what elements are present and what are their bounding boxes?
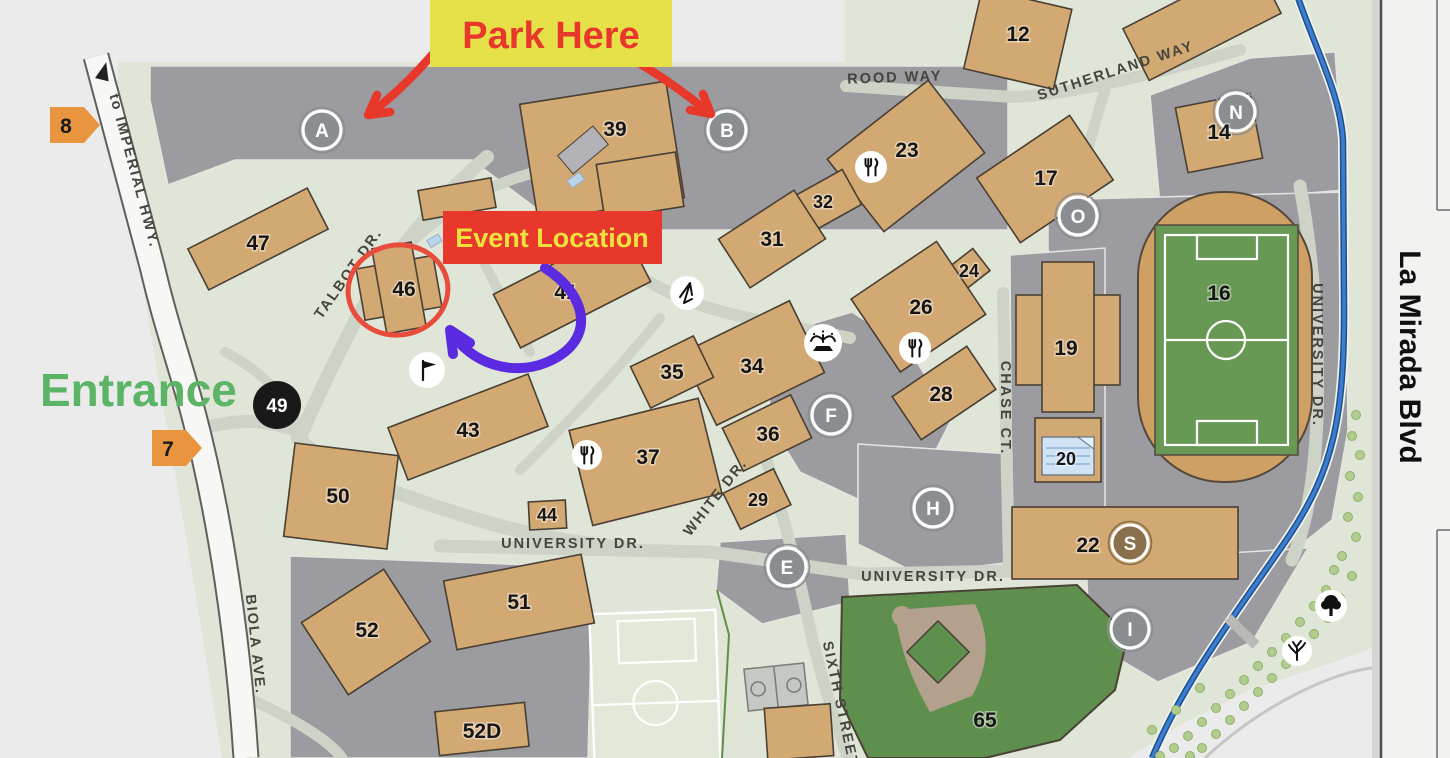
svg-text:O: O — [1071, 207, 1086, 228]
dining-icon — [572, 440, 602, 470]
building-label-52d: 52D — [463, 720, 502, 743]
dining-icon — [899, 332, 931, 364]
spot-marker-49: 49 — [253, 381, 301, 429]
lot-marker-h: H — [911, 486, 956, 531]
building-label-16: 16 — [1207, 282, 1230, 305]
entrance-label: Entrance — [40, 364, 237, 416]
fountain-icon — [804, 324, 842, 362]
svg-text:E: E — [781, 558, 794, 579]
lot-marker-f: F — [809, 393, 854, 438]
svg-text:S: S — [1124, 534, 1137, 555]
building-label-35: 35 — [660, 361, 684, 384]
building-label-50: 50 — [326, 485, 349, 508]
road-label-university-vertical: UNIVERSITY DR. — [1309, 283, 1325, 427]
road-label-la-mirada: La Mirada Blvd — [1393, 250, 1426, 463]
building-label-52: 52 — [355, 619, 378, 642]
building-label-32: 32 — [813, 192, 833, 212]
svg-text:H: H — [926, 499, 940, 520]
building-label-37: 37 — [636, 446, 659, 469]
road-label-chase: CHASE CT. — [997, 361, 1013, 456]
svg-text:7: 7 — [162, 438, 174, 461]
building-label-22: 22 — [1076, 534, 1099, 557]
lot-marker-a: A — [300, 108, 345, 153]
svg-text:8: 8 — [60, 115, 72, 138]
lot-marker-e: E — [765, 545, 810, 590]
building-label-20: 20 — [1056, 449, 1076, 469]
building-label-19: 19 — [1054, 337, 1077, 360]
building-unlabeled-bottom — [764, 704, 833, 758]
road-label-university-west: UNIVERSITY DR. — [501, 536, 645, 552]
building-label-39: 39 — [603, 118, 626, 141]
event-location-banner: Event Location — [443, 211, 662, 264]
building-label-23: 23 — [895, 139, 918, 162]
event-location-label: Event Location — [455, 223, 649, 253]
building-39-wing — [596, 152, 684, 219]
building-label-43: 43 — [456, 419, 479, 442]
building-label-51: 51 — [507, 591, 531, 614]
landmark-icon — [670, 276, 704, 310]
basketball-court — [744, 663, 808, 711]
shrub-icon — [1282, 636, 1312, 666]
svg-text:I: I — [1127, 620, 1132, 641]
svg-text:F: F — [825, 406, 837, 427]
road-label-university-east: UNIVERSITY DR. — [861, 569, 1005, 585]
svg-text:B: B — [720, 121, 734, 142]
flag-icon — [409, 352, 445, 388]
svg-text:A: A — [315, 121, 329, 142]
building-label-29: 29 — [748, 490, 768, 510]
building-label-17: 17 — [1034, 167, 1057, 190]
building-label-46: 46 — [392, 278, 415, 301]
campus-map-svg: to IMPERIAL HWY. BIOLA AVE. La Mirada Bl… — [0, 0, 1450, 758]
building-label-47: 47 — [246, 232, 269, 255]
baseball-homeplate — [892, 606, 912, 626]
building-label-44: 44 — [537, 505, 557, 525]
building-label-28: 28 — [929, 383, 953, 406]
building-label-65: 65 — [973, 709, 997, 732]
campus-map: to IMPERIAL HWY. BIOLA AVE. La Mirada Bl… — [0, 0, 1450, 758]
building-label-12: 12 — [1006, 23, 1029, 46]
tree-icon — [1315, 590, 1347, 622]
building-label-14: 14 — [1207, 121, 1231, 144]
park-here-label: Park Here — [462, 15, 639, 57]
building-label-36: 36 — [756, 423, 779, 446]
park-here-banner: Park Here — [430, 0, 672, 67]
lot-marker-o: O — [1056, 194, 1101, 239]
building-label-26: 26 — [909, 296, 932, 319]
dining-icon — [855, 151, 887, 183]
road-label-rood: ROOD WAY — [847, 68, 943, 87]
practice-field — [589, 610, 720, 758]
lot-marker-i: I — [1108, 607, 1153, 652]
building-label-24: 24 — [959, 261, 979, 281]
lot-marker-s: S — [1109, 522, 1152, 565]
building-label-34: 34 — [740, 355, 764, 378]
svg-text:49: 49 — [266, 396, 287, 417]
svg-text:N: N — [1229, 103, 1243, 124]
building-label-31: 31 — [760, 228, 784, 251]
